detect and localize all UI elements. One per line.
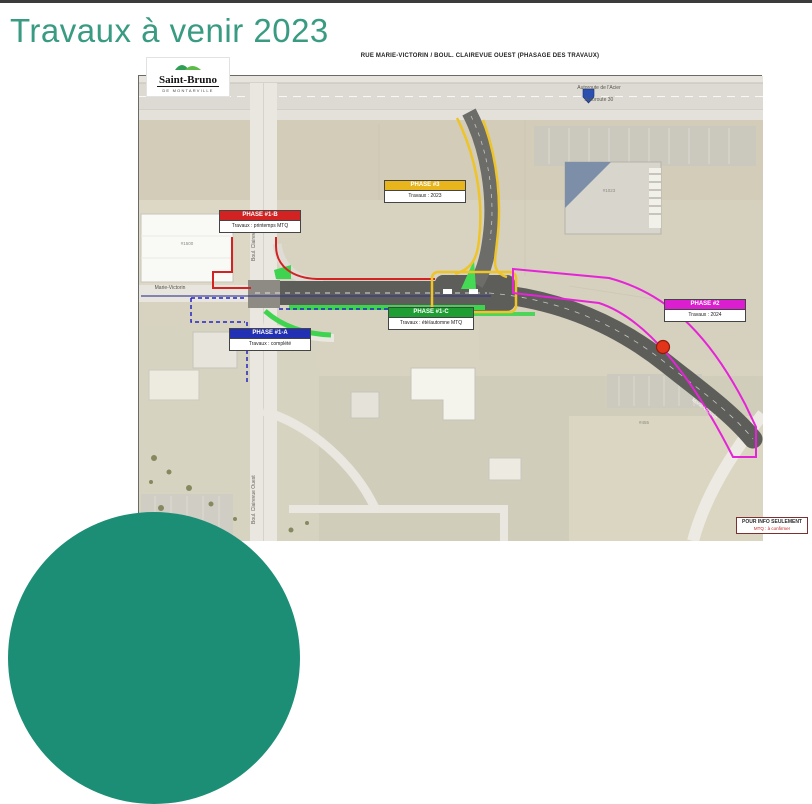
phase-box-2: PHASE #2 Travaux : 2024 bbox=[664, 299, 746, 322]
phase-box-title: PHASE #1-B bbox=[220, 211, 300, 221]
street-label-clairevue-south: Boul. Clairevue Ouest bbox=[251, 475, 257, 524]
phase-box-3: PHASE #3 Travaux : 2023 bbox=[384, 180, 466, 203]
phase-box-subtitle: Travaux : été/automne MTQ bbox=[389, 318, 473, 329]
info-only-line1: POUR INFO SEULEMENT bbox=[737, 519, 807, 526]
info-only-box: POUR INFO SEULEMENT MTQ : à confirmer bbox=[736, 517, 808, 534]
street-label-autoroute-number: Autoroute 30 bbox=[539, 97, 659, 103]
aerial-map: Marie-Victorin Boul. Clairevue Ouest Bou… bbox=[138, 75, 762, 540]
red-marker-dot bbox=[657, 341, 670, 354]
top-rule bbox=[0, 0, 812, 3]
teal-dome-decoration bbox=[8, 512, 300, 804]
phase-box-title: PHASE #3 bbox=[385, 181, 465, 191]
phase-box-1b: PHASE #1-B Travaux : printemps MTQ bbox=[219, 210, 301, 233]
city-logo-name: Saint-Bruno bbox=[157, 75, 219, 87]
street-label-marie-victorin-west: Marie-Victorin bbox=[141, 285, 199, 291]
map-header: RUE MARIE-VICTORIN / BOUL. CLAIREVUE OUE… bbox=[300, 53, 660, 59]
building-label: #1500 bbox=[167, 241, 207, 246]
mountain-icon bbox=[173, 59, 203, 70]
phase-box-1a: PHASE #1-A Travaux : complété bbox=[229, 328, 311, 351]
city-logo-subtitle: DE MONTARVILLE bbox=[147, 88, 229, 94]
slide-title: Travaux à venir 2023 bbox=[10, 12, 329, 50]
building-label: #455 bbox=[631, 420, 657, 425]
phase-box-subtitle: Travaux : printemps MTQ bbox=[220, 221, 300, 232]
info-only-line2: MTQ : à confirmer bbox=[737, 526, 807, 532]
phase-box-title: PHASE #1-C bbox=[389, 308, 473, 318]
phase-box-subtitle: Travaux : 2024 bbox=[665, 310, 745, 321]
phase-box-1c: PHASE #1-C Travaux : été/automne MTQ bbox=[388, 307, 474, 330]
building-label: #1023 bbox=[594, 188, 624, 193]
city-logo: Saint-Bruno DE MONTARVILLE bbox=[146, 57, 230, 97]
phase-box-title: PHASE #2 bbox=[665, 300, 745, 310]
phase-box-subtitle: Travaux : complété bbox=[230, 339, 310, 350]
slide: { "colors": { "title_teal": "#389b82", "… bbox=[0, 0, 812, 540]
phase-box-subtitle: Travaux : 2023 bbox=[385, 191, 465, 202]
phase-box-title: PHASE #1-A bbox=[230, 329, 310, 339]
street-label-autoroute-name: Autoroute de l'Acier bbox=[539, 85, 659, 91]
